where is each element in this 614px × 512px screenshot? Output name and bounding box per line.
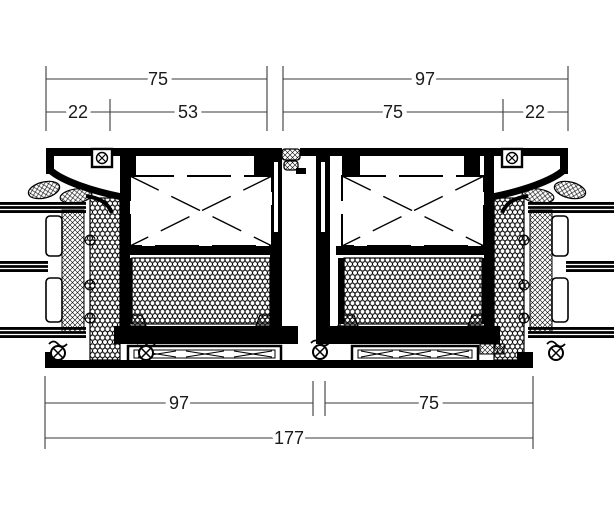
glass-spacer xyxy=(46,278,62,322)
tab xyxy=(342,156,360,178)
dim-label: 75 xyxy=(419,393,439,413)
dim-label: 97 xyxy=(415,69,435,89)
extension-line xyxy=(313,381,325,416)
extension-line xyxy=(110,99,503,131)
sill-gasket xyxy=(126,315,146,326)
dimension-labels-bottom: 97 75 177 xyxy=(169,393,439,448)
tab xyxy=(464,156,480,178)
glass-pane xyxy=(0,261,48,272)
tab xyxy=(120,156,136,178)
insulation-insert-box xyxy=(130,176,272,246)
extension-line xyxy=(46,66,568,131)
end-seal-icon xyxy=(137,342,155,361)
screw-channel-icon xyxy=(92,149,112,167)
foam-block xyxy=(338,258,488,324)
dimension-annotations-top xyxy=(46,66,568,131)
end-seal-icon xyxy=(547,342,565,361)
sill-gasket xyxy=(338,315,358,326)
glass-spacer xyxy=(552,216,568,256)
glazing-left xyxy=(0,198,120,360)
dimension-labels-top: 75 97 22 53 75 22 xyxy=(68,69,545,122)
sill-bar xyxy=(316,326,500,344)
glazing-right xyxy=(494,198,614,360)
top-wall xyxy=(46,148,278,156)
top-wall xyxy=(300,148,568,156)
dim-label: 177 xyxy=(274,428,304,448)
edge-insulation-hatch xyxy=(530,210,552,332)
coupler-gasket xyxy=(284,161,298,170)
sill-gasket xyxy=(256,315,276,326)
dim-label: 75 xyxy=(383,102,403,122)
wall-slot xyxy=(321,162,325,232)
tab xyxy=(254,156,272,178)
dim-label: 75 xyxy=(148,69,168,89)
end-seal-hatch xyxy=(480,344,504,354)
base-step xyxy=(517,352,533,360)
seal-blob xyxy=(27,178,62,201)
section-drawing: 75 97 22 53 75 22 97 75 177 xyxy=(0,0,614,512)
end-seal-icon xyxy=(49,342,67,361)
sill-gasket xyxy=(468,315,488,326)
dim-label: 22 xyxy=(525,102,545,122)
edge-insulation-hatch xyxy=(62,210,84,332)
glass-pane xyxy=(566,261,614,272)
wall-slot xyxy=(274,162,278,232)
seal-blob xyxy=(553,178,588,201)
glass-spacer xyxy=(46,216,62,256)
dim-label: 22 xyxy=(68,102,88,122)
screw-channel-icon xyxy=(502,149,522,167)
technical-drawing-canvas: 75 97 22 53 75 22 97 75 177 xyxy=(0,0,614,512)
foam-block xyxy=(126,258,276,324)
coupler-nub xyxy=(296,168,306,174)
mid-bar xyxy=(336,246,490,255)
coupler-gasket xyxy=(282,149,300,160)
dim-label: 53 xyxy=(178,102,198,122)
seal-blob xyxy=(59,187,93,205)
insulation-insert-box xyxy=(342,176,484,246)
seal-blob xyxy=(521,187,555,205)
glass-spacer xyxy=(552,278,568,322)
mid-bar xyxy=(124,246,278,255)
base-bar xyxy=(45,360,533,368)
dim-label: 97 xyxy=(169,393,189,413)
base-strip xyxy=(352,346,478,362)
